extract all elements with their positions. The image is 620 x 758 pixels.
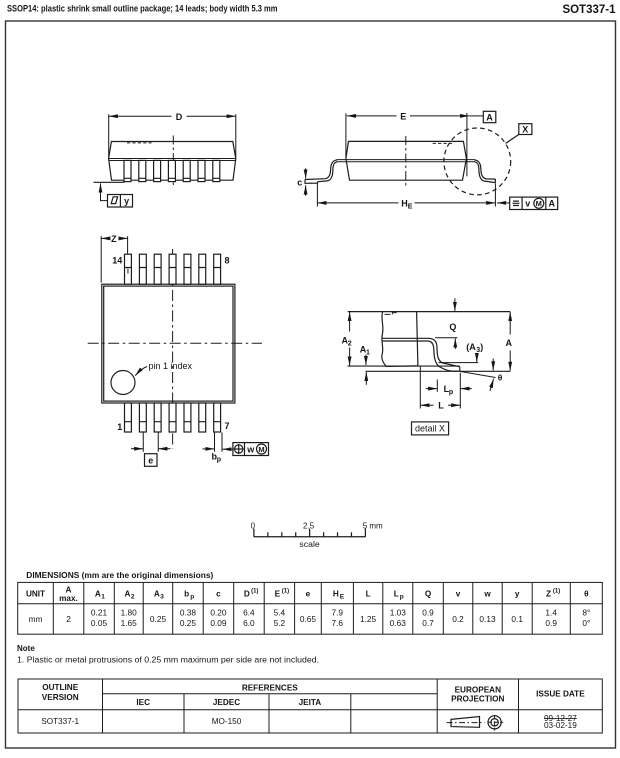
svg-text:L: L (438, 401, 444, 411)
svg-text:1.03: 1.03 (390, 608, 407, 618)
svg-text:(1): (1) (553, 589, 560, 595)
svg-text:DIMENSIONS (mm are the origina: DIMENSIONS (mm are the original dimensio… (26, 571, 213, 580)
svg-text:PROJECTION: PROJECTION (451, 694, 504, 703)
svg-text:e: e (306, 590, 311, 599)
svg-text:Z: Z (546, 590, 551, 599)
svg-text:0°: 0° (582, 618, 590, 628)
svg-text:Note: Note (17, 644, 35, 653)
svg-text:Q: Q (449, 322, 456, 332)
svg-text:1: 1 (101, 594, 105, 601)
svg-text:EUROPEAN: EUROPEAN (455, 685, 501, 694)
svg-text:y: y (515, 590, 520, 599)
svg-text:SOT337-1: SOT337-1 (562, 4, 616, 16)
svg-text:0.38: 0.38 (180, 608, 197, 618)
svg-text:2: 2 (66, 614, 71, 624)
svg-text:c: c (216, 590, 221, 599)
svg-text:0.2: 0.2 (452, 614, 464, 624)
svg-text:p: p (400, 594, 404, 601)
svg-text:H: H (401, 198, 408, 208)
svg-text:2: 2 (348, 341, 352, 348)
svg-text:pin 1 index: pin 1 index (149, 361, 193, 371)
svg-text:(1): (1) (251, 589, 258, 595)
svg-text:M: M (258, 445, 264, 454)
svg-text:θ: θ (584, 590, 589, 599)
svg-text:5.4: 5.4 (274, 608, 286, 618)
svg-text:1.4: 1.4 (545, 608, 557, 618)
svg-text:A: A (154, 590, 160, 599)
svg-text:UNIT: UNIT (26, 590, 45, 599)
svg-text:v: v (525, 199, 530, 209)
svg-text:E: E (340, 594, 345, 601)
svg-text:A: A (125, 590, 131, 599)
svg-text:14: 14 (112, 256, 122, 266)
svg-text:Z: Z (111, 234, 117, 244)
svg-text:E: E (275, 590, 281, 599)
svg-text:ISSUE DATE: ISSUE DATE (536, 690, 585, 699)
svg-text:JEITA: JEITA (299, 698, 322, 707)
svg-text:e: e (148, 456, 153, 466)
svg-text:D: D (244, 590, 250, 599)
svg-text:v: v (456, 590, 461, 599)
svg-text:0: 0 (251, 521, 256, 530)
svg-text:0.13: 0.13 (479, 614, 496, 624)
svg-text:E: E (408, 203, 413, 210)
svg-text:Q: Q (425, 590, 432, 599)
svg-text:1.25: 1.25 (360, 614, 377, 624)
svg-text:L: L (366, 590, 371, 599)
svg-text:MO-150: MO-150 (212, 717, 242, 726)
svg-text:M: M (536, 199, 542, 208)
svg-text:c: c (297, 178, 302, 188)
svg-text:6.0: 6.0 (243, 618, 255, 628)
svg-text:03-02-19: 03-02-19 (544, 721, 577, 730)
svg-text:0.7: 0.7 (422, 618, 434, 628)
svg-text:A: A (549, 199, 556, 209)
svg-text:1.80: 1.80 (121, 608, 138, 618)
svg-text:1. Plastic or metal protrusion: 1. Plastic or metal protrusions of 0.25 … (17, 656, 319, 665)
svg-text:): ) (480, 342, 483, 352)
svg-text:1: 1 (117, 422, 122, 432)
svg-text:w: w (246, 444, 255, 454)
svg-text:0.20: 0.20 (210, 608, 227, 618)
svg-text:y: y (124, 196, 129, 206)
svg-text:3: 3 (160, 594, 164, 601)
svg-text:D: D (176, 112, 183, 122)
svg-text:0.65: 0.65 (300, 614, 317, 624)
svg-text:(1): (1) (282, 589, 289, 595)
svg-text:0.09: 0.09 (210, 618, 227, 628)
svg-text:JEDEC: JEDEC (213, 698, 240, 707)
svg-text:0.1: 0.1 (511, 614, 523, 624)
svg-text:7.6: 7.6 (332, 618, 344, 628)
svg-text:5.2: 5.2 (274, 618, 286, 628)
svg-text:0.05: 0.05 (91, 618, 108, 628)
svg-text:(A: (A (466, 342, 476, 352)
svg-text:SSOP14: plastic shrink small o: SSOP14: plastic shrink small outline pac… (7, 4, 278, 14)
svg-text:OUTLINE: OUTLINE (42, 683, 78, 692)
svg-text:max.: max. (59, 594, 78, 603)
svg-text:p: p (190, 594, 194, 601)
svg-text:5 mm: 5 mm (363, 521, 383, 530)
svg-text:0.63: 0.63 (390, 618, 407, 628)
svg-text:0.9: 0.9 (422, 608, 434, 618)
svg-text:scale: scale (299, 540, 320, 549)
svg-text:p: p (449, 389, 453, 396)
svg-text:2: 2 (131, 594, 135, 601)
svg-text:L: L (394, 590, 399, 599)
svg-text:X: X (522, 125, 528, 135)
svg-text:detail X: detail X (415, 424, 445, 434)
svg-text:1.65: 1.65 (121, 618, 138, 628)
svg-text:w: w (483, 590, 491, 599)
svg-text:0.21: 0.21 (91, 608, 108, 618)
svg-text:E: E (400, 112, 406, 122)
svg-text:mm: mm (29, 614, 43, 624)
svg-text:VERSION: VERSION (42, 693, 79, 702)
svg-text:REFERENCES: REFERENCES (242, 683, 298, 692)
svg-text:1: 1 (366, 349, 370, 356)
svg-text:θ: θ (498, 373, 503, 383)
svg-text:0.25: 0.25 (150, 614, 167, 624)
svg-text:H: H (333, 590, 339, 599)
svg-text:8: 8 (225, 256, 230, 266)
svg-text:IEC: IEC (136, 698, 150, 707)
svg-text:0.9: 0.9 (545, 618, 557, 628)
svg-text:7.9: 7.9 (332, 608, 344, 618)
svg-text:8°: 8° (582, 608, 590, 618)
svg-text:SOT337-1: SOT337-1 (41, 717, 79, 726)
svg-text:p: p (217, 457, 221, 464)
svg-text:6.4: 6.4 (243, 608, 255, 618)
svg-text:b: b (184, 590, 189, 599)
svg-text:A: A (486, 113, 493, 123)
svg-text:A: A (506, 338, 513, 348)
svg-text:2.5: 2.5 (303, 521, 315, 530)
svg-text:0.25: 0.25 (180, 618, 197, 628)
svg-text:A: A (95, 590, 101, 599)
svg-text:7: 7 (225, 421, 230, 431)
